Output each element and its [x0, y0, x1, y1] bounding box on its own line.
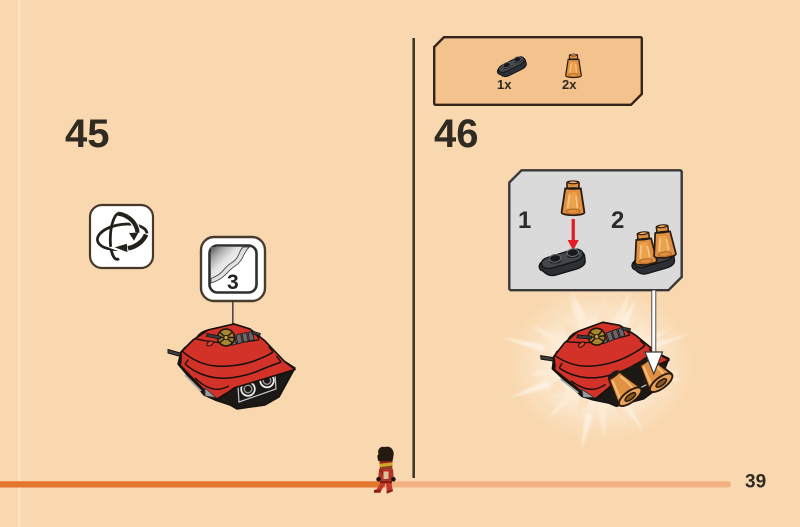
svg-text:1: 1: [518, 207, 531, 234]
svg-text:45: 45: [65, 112, 110, 156]
svg-text:1x: 1x: [497, 77, 512, 92]
svg-text:39: 39: [745, 472, 766, 493]
svg-text:3: 3: [227, 271, 239, 294]
svg-text:2: 2: [611, 207, 624, 234]
svg-text:46: 46: [434, 112, 479, 156]
svg-text:2x: 2x: [562, 77, 577, 92]
